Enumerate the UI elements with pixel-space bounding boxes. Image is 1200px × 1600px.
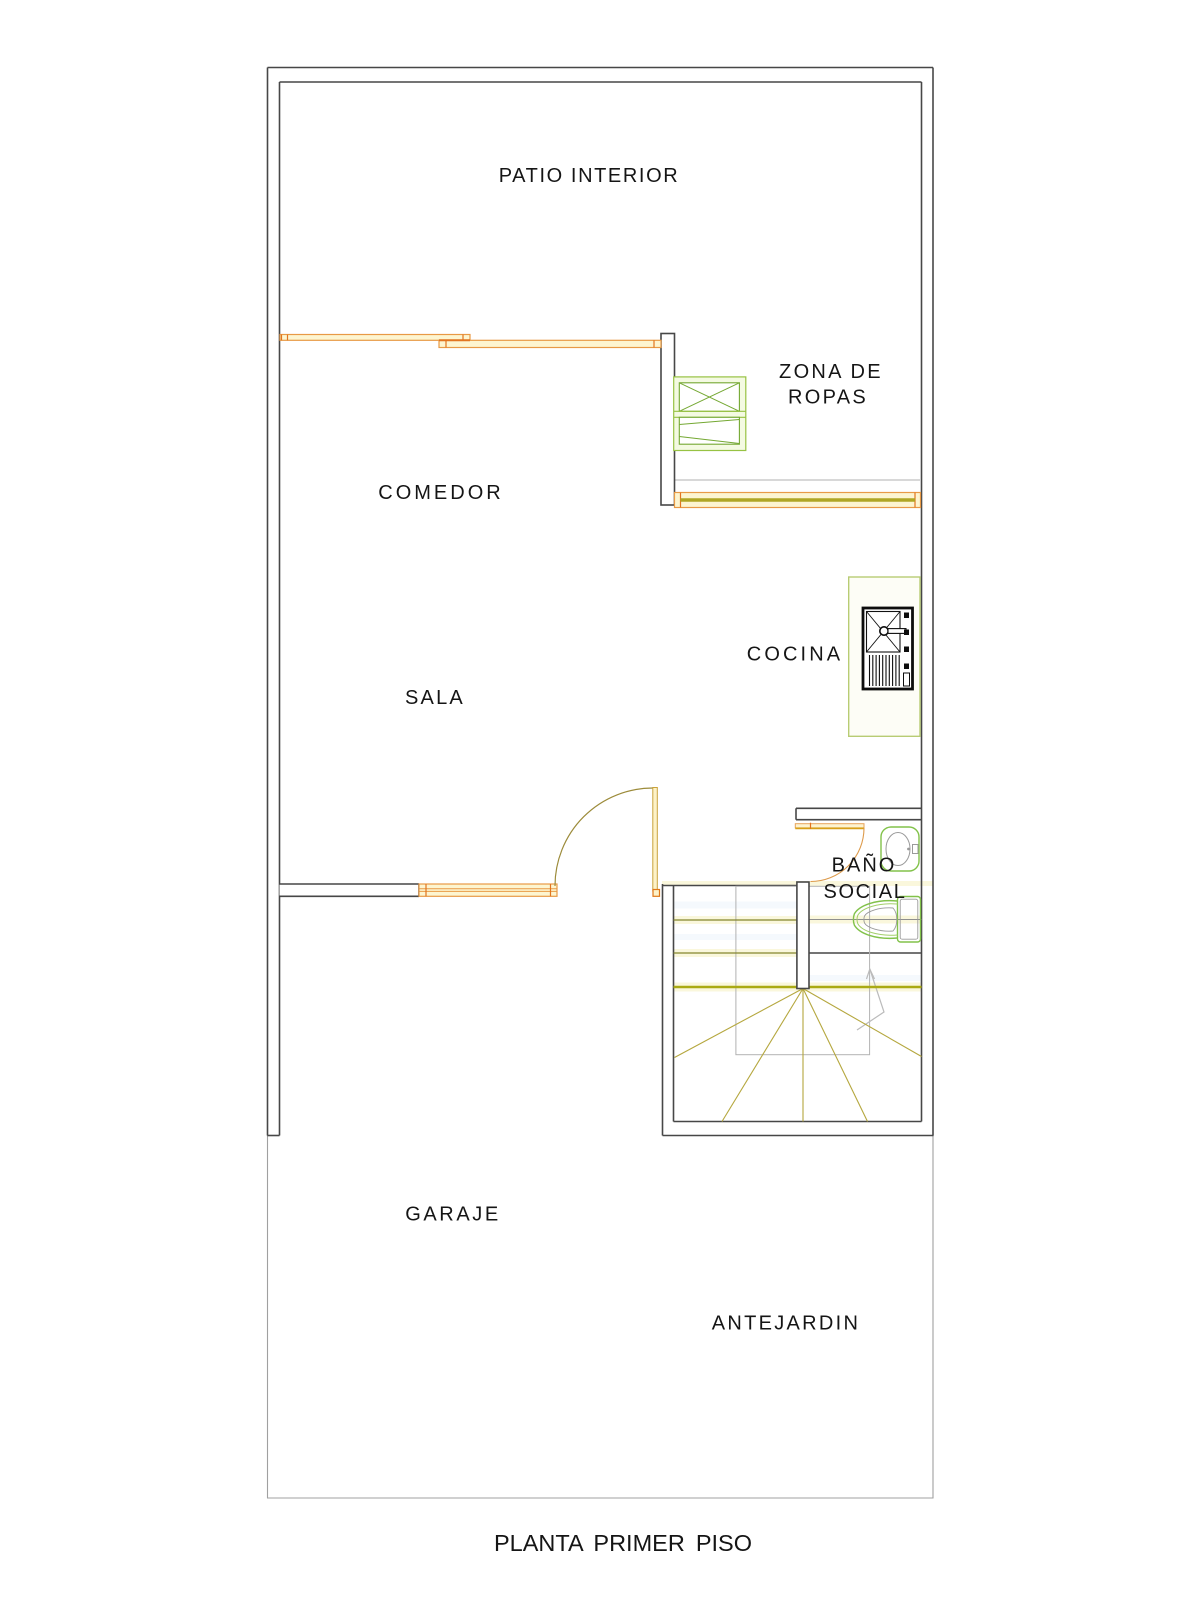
svg-text:GARAJE: GARAJE <box>405 1204 501 1226</box>
svg-text:COMEDOR: COMEDOR <box>378 482 503 504</box>
svg-text:PLANTA PRIMER PISO: PLANTA PRIMER PISO <box>494 1530 752 1556</box>
svg-text:SOCIAL: SOCIAL <box>824 881 907 903</box>
svg-text:SALA: SALA <box>405 687 465 709</box>
svg-text:PATIO INTERIOR: PATIO INTERIOR <box>499 165 680 187</box>
svg-text:ZONA DE: ZONA DE <box>779 361 883 383</box>
svg-text:BAÑO: BAÑO <box>832 853 897 877</box>
svg-text:ANTEJARDIN: ANTEJARDIN <box>712 1313 861 1335</box>
svg-text:ROPAS: ROPAS <box>788 387 868 409</box>
svg-text:COCINA: COCINA <box>747 644 843 666</box>
